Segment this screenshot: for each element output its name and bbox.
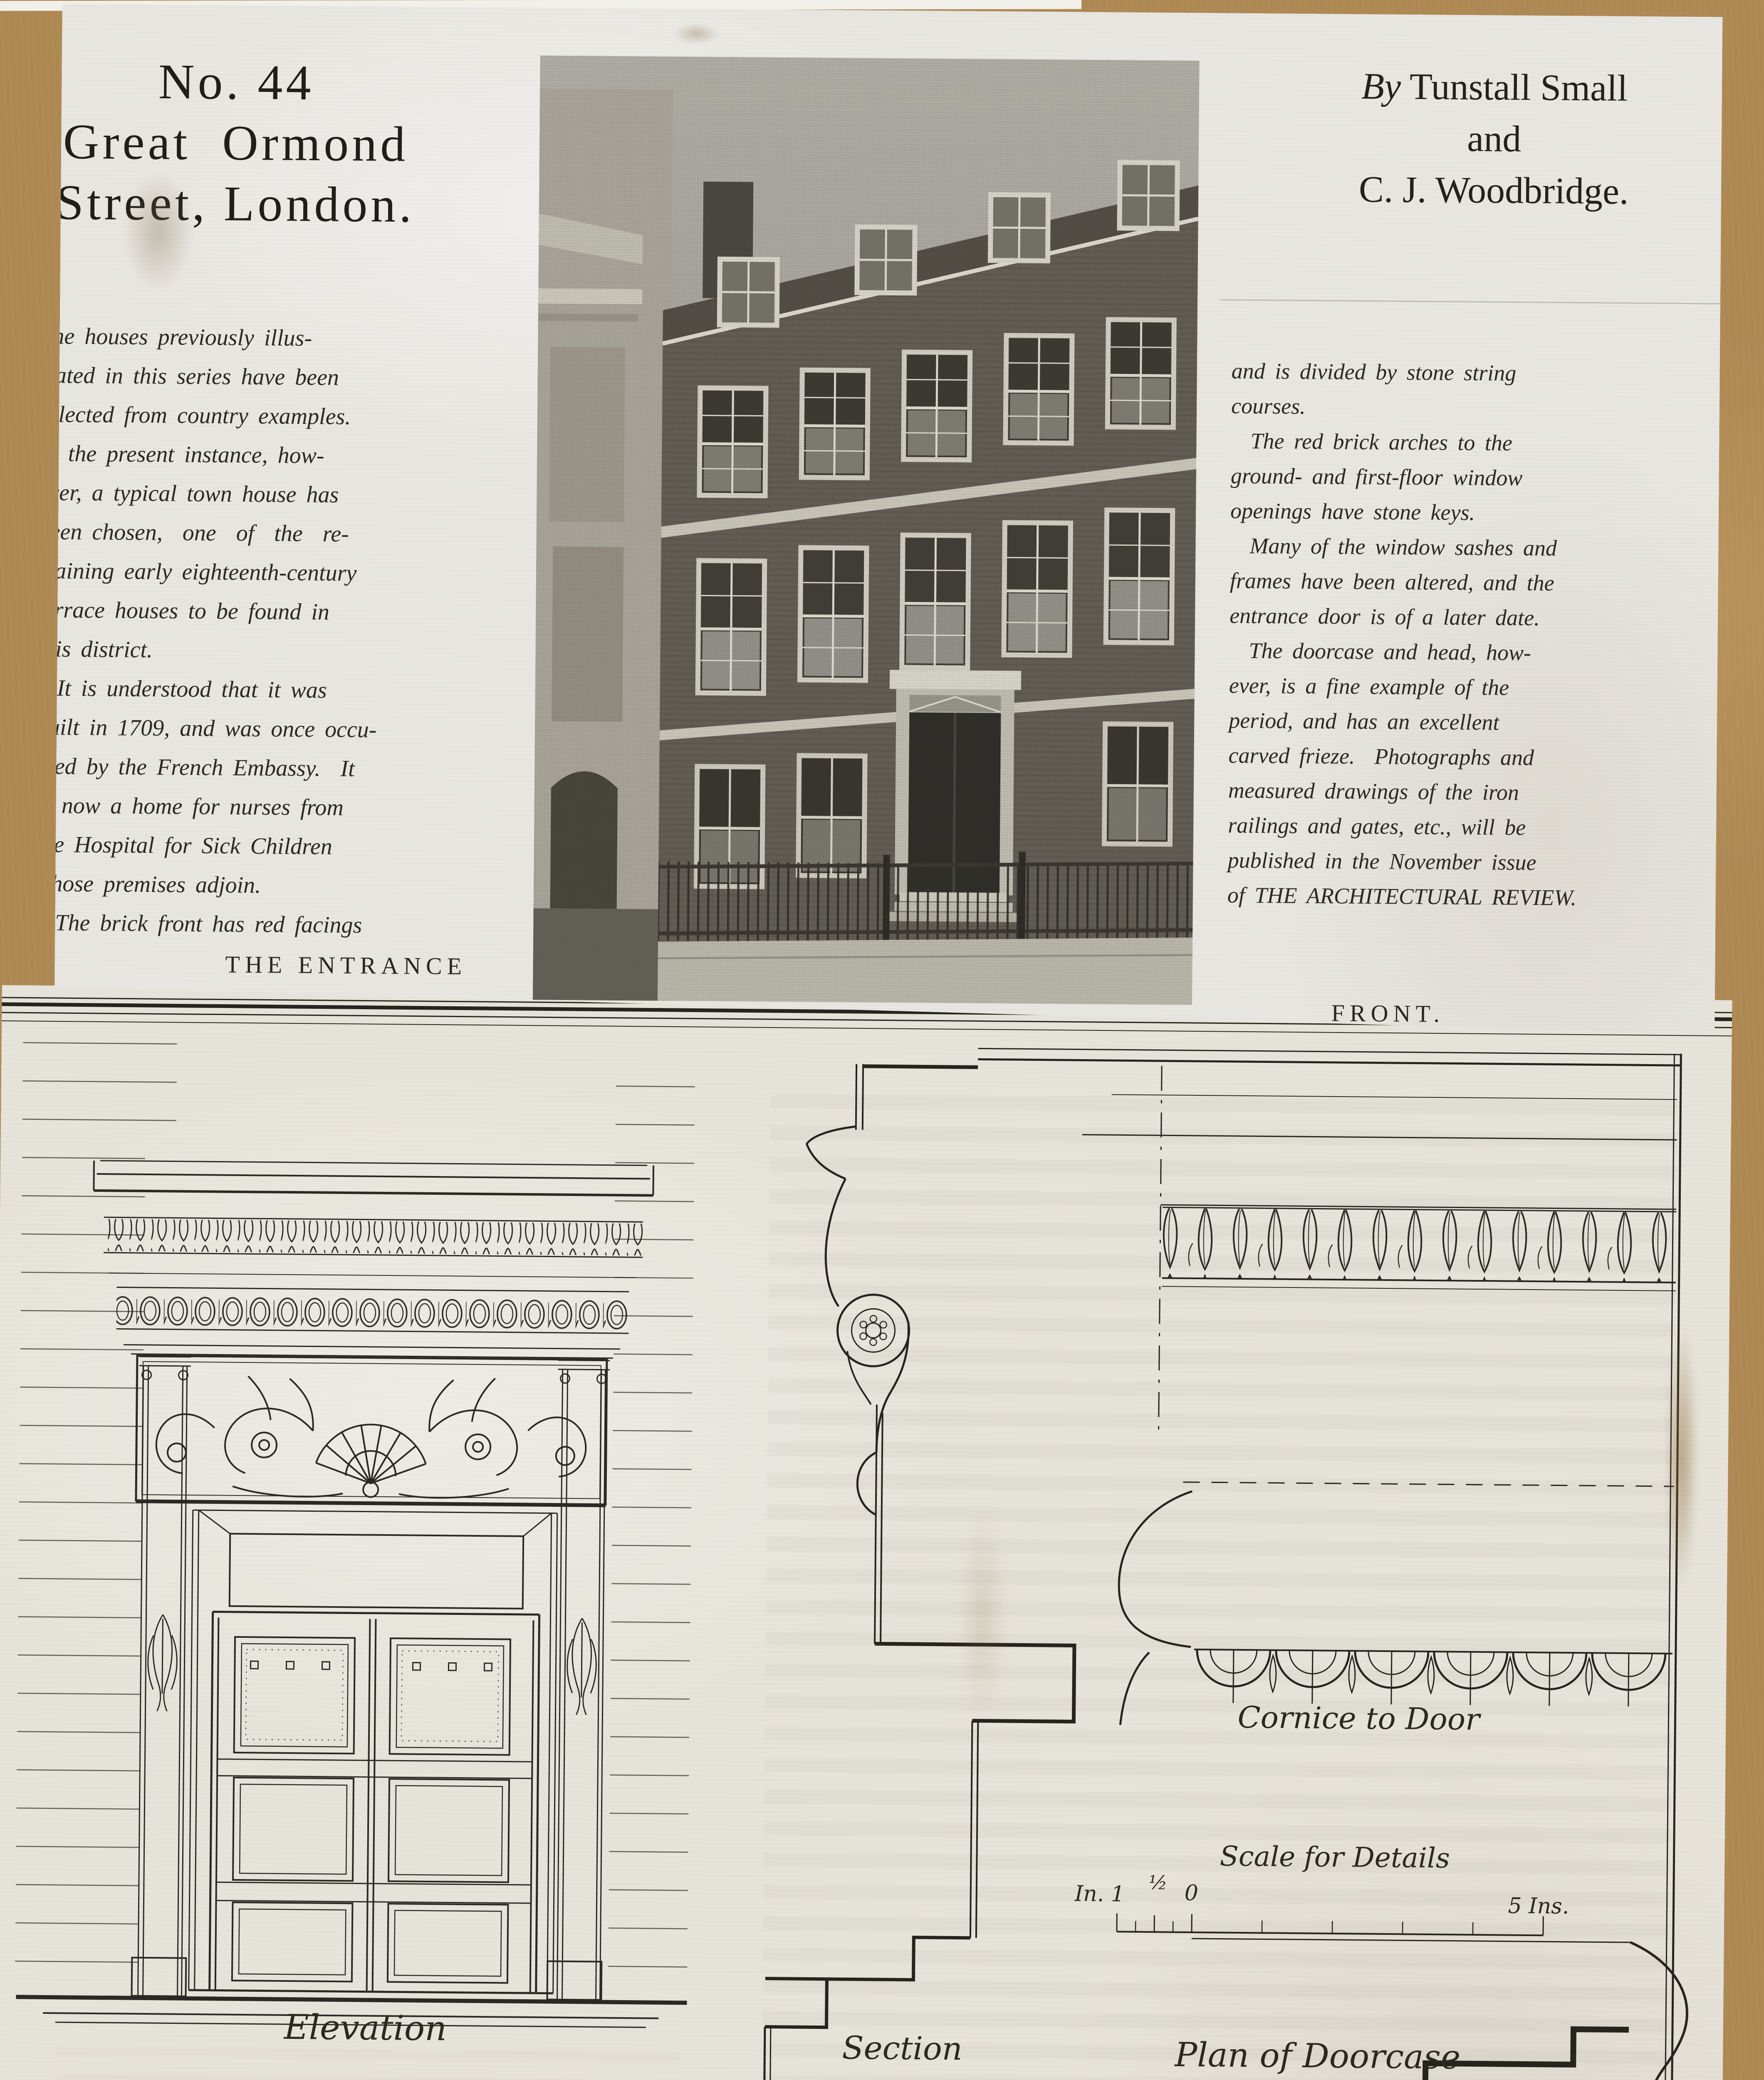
article-byline: By Tunstall Small and C. J. Woodbridge.: [1221, 59, 1723, 218]
acanthus-drop-left: [148, 1614, 178, 1711]
stain: [673, 23, 719, 45]
measured-drawing-sheet: Elevation Plan Section Cornice to Door S…: [0, 985, 1732, 2080]
paper-crease: [1220, 299, 1722, 305]
scanned-scrapbook-page: Elevation Plan Section Cornice to Door S…: [0, 0, 1764, 2080]
article-clipping: No. 44 Great Ormond Street, London. By T…: [54, 4, 1722, 1034]
entrance-front-photograph: [533, 55, 1200, 1005]
label-plan-of-doorcase: Plan of Doorcase: [1175, 2035, 1461, 2077]
label-scale-for-details: Scale for Details: [1220, 1840, 1450, 1874]
stain: [122, 171, 194, 292]
byline-and: and: [1222, 111, 1723, 167]
fan-band: [1197, 1649, 1665, 1707]
article-left-column: The houses previously illus- trated in t…: [54, 317, 522, 946]
label-elevation: Elevation: [284, 2008, 447, 2048]
cornice-detail: [972, 1048, 1681, 1730]
detail-scale-bar: [1117, 1912, 1543, 1935]
article-right-column: and is divided by stone string courses. …: [1227, 353, 1723, 916]
label-cornice-to-door: Cornice to Door: [1237, 1700, 1480, 1737]
door-section: [763, 1063, 1079, 2080]
caption-front: FRONT.: [1331, 999, 1445, 1028]
detail-scale-zero: 0: [1185, 1881, 1199, 1906]
byline-line1: By Tunstall Small: [1222, 59, 1723, 115]
caption-the-entrance: THE ENTRANCE: [225, 951, 467, 981]
detail-scale-5ins: 5 Ins.: [1508, 1894, 1569, 1919]
stud-squares: [250, 1661, 492, 1671]
acanthus-drop-right: [567, 1618, 597, 1715]
byline-author2: C. J. Woodbridge.: [1221, 163, 1723, 218]
byline-author1: Tunstall Small: [1401, 66, 1628, 109]
byline-by: By: [1361, 66, 1401, 107]
article-title: No. 44 Great Ormond Street, London.: [54, 50, 488, 236]
carved-frieze-scrollwork: [156, 1375, 586, 1499]
door-details-linework: [0, 985, 1732, 2080]
weatherboarding-lines: [15, 1032, 695, 2002]
detail-scale-half: ½: [1149, 1871, 1168, 1894]
detail-scale-in1: In. 1: [1075, 1882, 1125, 1907]
label-section: Section: [842, 2029, 962, 2068]
door-leaf: [210, 1612, 539, 1993]
